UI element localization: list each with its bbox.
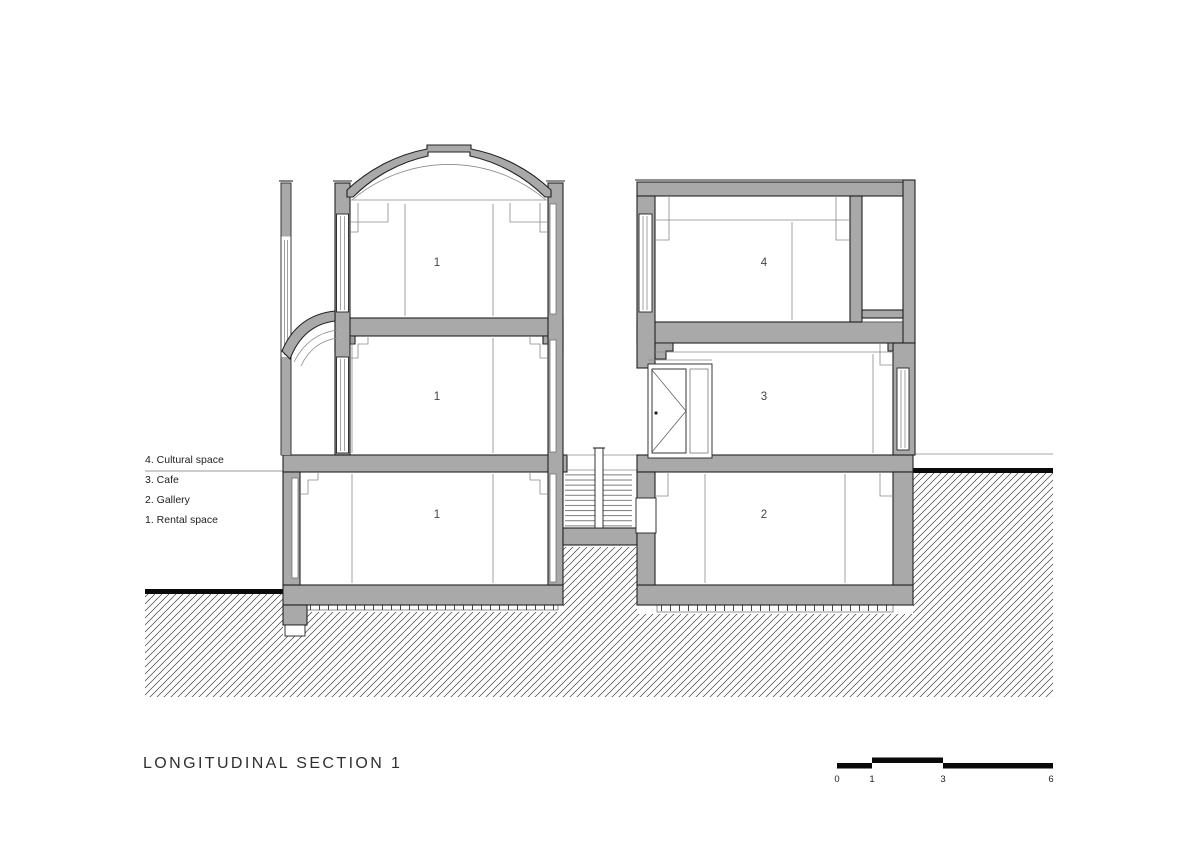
left-slab-1 [335, 318, 563, 336]
right-east-wall-basement [893, 472, 913, 585]
stair-railing [593, 448, 605, 528]
ground-line-left [145, 589, 286, 594]
basement-door-opening [636, 498, 656, 533]
left-east-liner-2 [550, 340, 556, 452]
left-bot-cornice-r [530, 472, 548, 494]
left-east-liner-3 [550, 474, 556, 582]
left-basement-wall-liner [292, 478, 298, 578]
terrace-slab [862, 310, 903, 318]
arched-roof [347, 145, 551, 197]
left-window-mid [337, 357, 349, 453]
left-window-top [337, 214, 349, 312]
room-label-left-top: 1 [434, 257, 440, 269]
legend: 4. Cultural space 3. Cafe 2. Gallery 1. … [145, 454, 224, 526]
room2-cornice-l [655, 473, 668, 496]
left-building [279, 145, 567, 636]
left-footing-pad [285, 625, 305, 636]
scale-label-6: 6 [1048, 774, 1053, 785]
left-top-cornice-l [350, 203, 388, 232]
left-slab-2 [283, 455, 567, 472]
room-label-right-middle: 3 [761, 391, 767, 403]
scale-segment-3 [943, 763, 1053, 769]
right-bottom-slab [637, 585, 913, 605]
drawing-title: LONGITUDINAL SECTION 1 [143, 755, 402, 772]
legend-item-4: 4. Cultural space [145, 454, 224, 466]
right-inner-east-wall [850, 196, 862, 322]
stair-base-slab [563, 528, 637, 545]
room-label-right-bottom: 2 [761, 509, 767, 521]
room4-cornice-l [655, 197, 669, 240]
room-label-right-top: 4 [761, 257, 768, 269]
section-drawing: 1 1 1 4 3 2 4. Cultural space 3. Cafe 2.… [0, 0, 1200, 846]
left-top-cornice-r [510, 203, 548, 232]
door-handle [654, 411, 657, 414]
legend-item-2: 2. Gallery [145, 494, 191, 506]
scale-label-0: 0 [834, 774, 839, 785]
room3-door [648, 360, 712, 458]
left-east-liner-1 [550, 204, 556, 314]
room3-east-window [897, 368, 909, 450]
right-slab43-cornice-l [655, 343, 673, 359]
room2-cornice-r [880, 473, 893, 496]
architectural-sheet: 1 1 1 4 3 2 4. Cultural space 3. Cafe 2.… [0, 0, 1200, 846]
right-parapet-wall [903, 180, 915, 343]
scale-label-3: 3 [940, 774, 945, 785]
scale-segment-1 [837, 763, 872, 769]
left-bot-cornice-l [300, 472, 318, 494]
room-label-left-bottom: 1 [434, 509, 440, 521]
right-slab-43 [637, 322, 912, 343]
right-building [635, 180, 915, 605]
left-footing [283, 605, 307, 625]
room-label-left-middle: 1 [434, 391, 440, 403]
ground-line-right [908, 468, 1053, 473]
room4-cornice-r [836, 197, 850, 240]
room4-west-window [639, 214, 652, 312]
left-bottom-slab [283, 585, 563, 605]
scale-label-1: 1 [869, 774, 874, 785]
scale-bar: 0 1 3 6 [834, 758, 1053, 786]
legend-item-1: 1. Rental space [145, 514, 218, 526]
party-wall [279, 181, 293, 455]
scale-segment-2 [872, 758, 943, 764]
stair-zone [563, 448, 637, 545]
legend-item-3: 3. Cafe [145, 474, 179, 486]
right-roof-slab [637, 182, 905, 196]
